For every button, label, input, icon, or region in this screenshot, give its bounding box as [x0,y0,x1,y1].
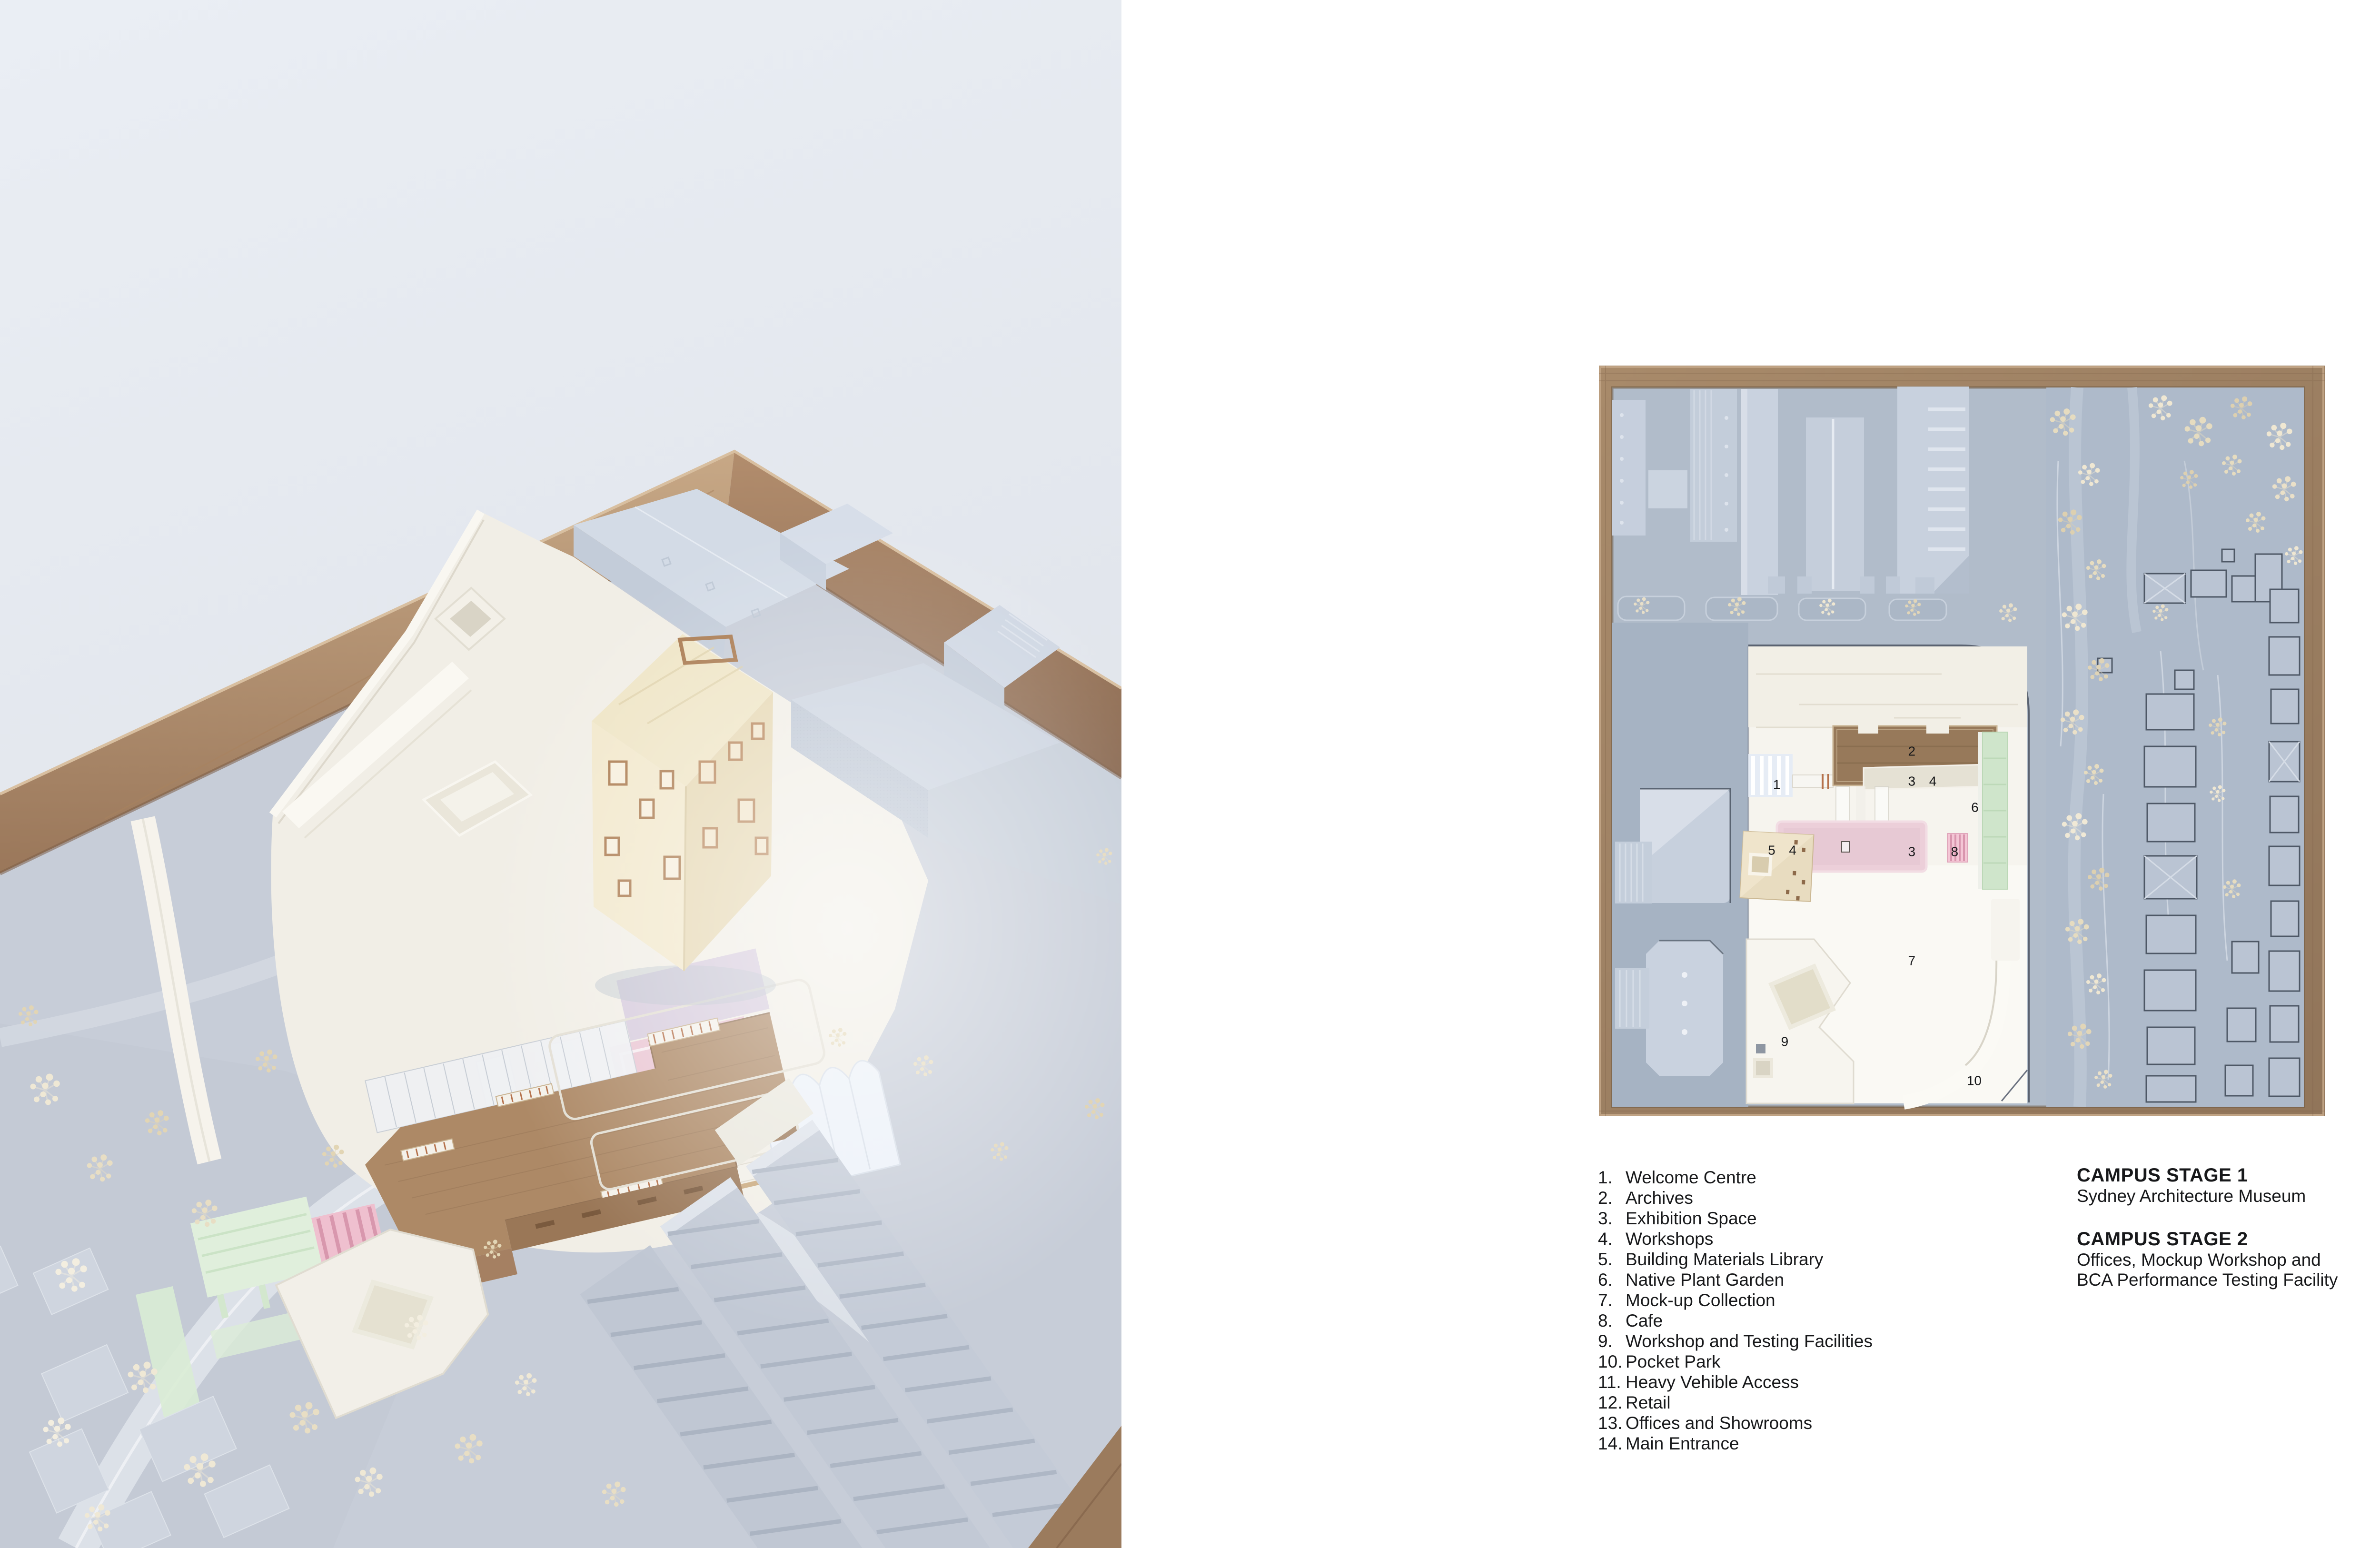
legend-item-number: 7. [1598,1290,1626,1310]
legend-item-number: 13. [1598,1413,1626,1433]
legend-item-number: 8. [1598,1310,1626,1331]
legend-item-number: 14. [1598,1433,1626,1454]
legend-item: 3.Exhibition Space [1598,1208,1873,1229]
model-photo-plan: 1234654387910 [1599,366,2325,1116]
legend-list: 1.Welcome Centre2.Archives3.Exhibition S… [1598,1167,1873,1454]
legend-item: 4.Workshops [1598,1229,1873,1249]
legend-item: 11.Heavy Vehible Access [1598,1372,1873,1392]
stage1-title: CAMPUS STAGE 1 [2077,1164,2338,1186]
legend-item-label: Main Entrance [1626,1433,1739,1454]
legend-item: 10.Pocket Park [1598,1351,1873,1372]
legend-item: 2.Archives [1598,1188,1873,1208]
legend-item: 12.Retail [1598,1392,1873,1413]
legend-item: 7.Mock-up Collection [1598,1290,1873,1310]
legend-item: 9.Workshop and Testing Facilities [1598,1331,1873,1351]
legend-item-number: 2. [1598,1188,1626,1208]
campus-captions: CAMPUS STAGE 1 Sydney Architecture Museu… [2077,1164,2338,1290]
legend-item-label: Welcome Centre [1626,1167,1756,1188]
legend-item: 14.Main Entrance [1598,1433,1873,1454]
legend-item-number: 11. [1598,1372,1626,1392]
legend-item-label: Exhibition Space [1626,1208,1757,1229]
stage1-body: Sydney Architecture Museum [2077,1186,2338,1206]
legend-item-number: 9. [1598,1331,1626,1351]
legend-item-label: Offices and Showrooms [1626,1413,1812,1433]
legend-item: 6.Native Plant Garden [1598,1270,1873,1290]
campus-stage-1: CAMPUS STAGE 1 Sydney Architecture Museu… [2077,1164,2338,1206]
model-photo-perspective [0,0,1121,1548]
legend-item-label: Workshop and Testing Facilities [1626,1331,1873,1351]
legend-item-number: 5. [1598,1249,1626,1270]
legend-item-label: Mock-up Collection [1626,1290,1775,1310]
legend-item-number: 12. [1598,1392,1626,1413]
legend-item-number: 6. [1598,1270,1626,1290]
legend-item-number: 4. [1598,1229,1626,1249]
legend-item-number: 3. [1598,1208,1626,1229]
legend-item-label: Building Materials Library [1626,1249,1823,1270]
portfolio-page: 1234654387910 1.Welcome Centre2.Archives… [0,0,2380,1548]
legend-item-label: Cafe [1626,1310,1663,1331]
model-photo-perspective-svg [0,0,1121,1548]
legend-item: 8.Cafe [1598,1310,1873,1331]
legend-item-label: Archives [1626,1188,1693,1208]
stage2-line2: BCA Performance Testing Facility [2077,1270,2338,1290]
campus-stage-2: CAMPUS STAGE 2 Offices, Mockup Workshop … [2077,1228,2338,1290]
legend-item-number: 1. [1598,1167,1626,1188]
legend-item-label: Heavy Vehible Access [1626,1372,1799,1392]
legend-item-number: 10. [1598,1351,1626,1372]
model-photo-plan-svg [1599,366,2325,1116]
legend-item: 13.Offices and Showrooms [1598,1413,1873,1433]
stage2-line1: Offices, Mockup Workshop and [2077,1250,2338,1270]
legend-item-label: Workshops [1626,1229,1713,1249]
legend-item-label: Pocket Park [1626,1351,1720,1372]
legend-item-label: Retail [1626,1392,1671,1413]
legend-item: 1.Welcome Centre [1598,1167,1873,1188]
stage2-title: CAMPUS STAGE 2 [2077,1228,2338,1250]
legend-item: 5.Building Materials Library [1598,1249,1873,1270]
legend-item-label: Native Plant Garden [1626,1270,1784,1290]
